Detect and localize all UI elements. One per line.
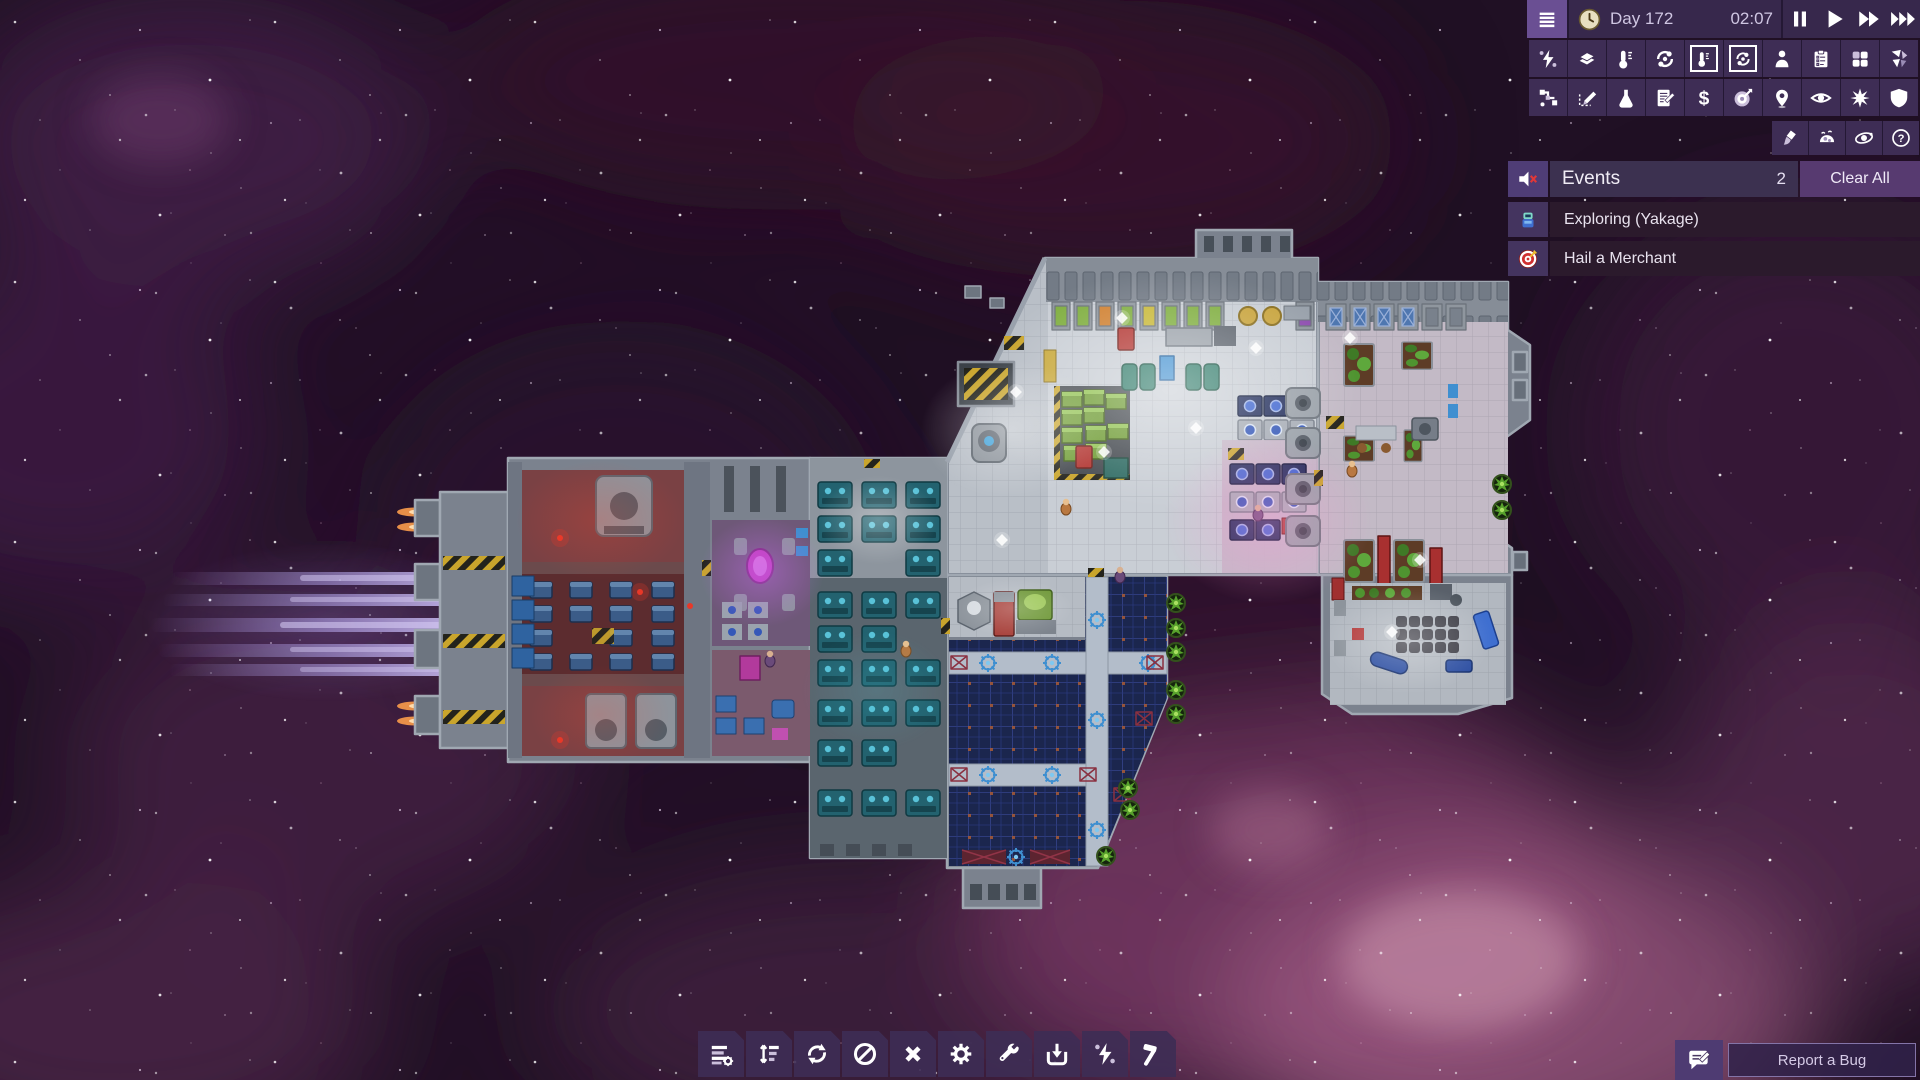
paint-tool-button[interactable] — [1772, 121, 1808, 155]
play-icon — [1821, 6, 1847, 32]
research-button[interactable] — [1607, 79, 1645, 116]
event-row-exploring[interactable]: Exploring (Yakage) — [1508, 202, 1920, 237]
event-label: Hail a Merchant — [1550, 241, 1920, 276]
trade-dollar-icon — [1693, 87, 1715, 109]
play-button[interactable] — [1818, 3, 1850, 35]
chat-pencil-icon — [1686, 1047, 1712, 1073]
gas-exterior-button[interactable] — [1724, 40, 1762, 77]
paint-tool-icon — [1780, 128, 1800, 148]
pipes-network-icon — [1537, 87, 1559, 109]
settings-button[interactable] — [938, 1031, 984, 1077]
overlay-toolbar-row1 — [1529, 40, 1918, 77]
clock-bar: Day 172 02:07 — [1569, 0, 1781, 38]
temperature-exterior-button[interactable] — [1685, 40, 1723, 77]
fastest-forward-icon — [1890, 6, 1916, 32]
menu-icon — [1536, 8, 1558, 30]
power-network-icon — [1092, 1041, 1118, 1067]
clear-all-button[interactable]: Clear All — [1800, 161, 1920, 197]
rotate-icon — [804, 1041, 830, 1067]
floor-tiles-icon — [1576, 48, 1598, 70]
build-list-icon — [708, 1041, 734, 1067]
playback-controls — [1783, 0, 1920, 38]
floor-tiles-button[interactable] — [1568, 40, 1606, 77]
forbid-button[interactable] — [842, 1031, 888, 1077]
time-label: 02:07 — [1730, 9, 1773, 29]
help-icon — [1891, 128, 1911, 148]
event-icon-cell — [1508, 241, 1548, 276]
report-bug-button[interactable]: Report a Bug — [1728, 1043, 1916, 1077]
power-network-button[interactable] — [1082, 1031, 1128, 1077]
pause-icon — [1788, 7, 1812, 31]
visibility-button[interactable] — [1802, 79, 1840, 116]
contracts-document-icon — [1654, 87, 1676, 109]
contracts-button[interactable] — [1646, 79, 1684, 116]
rooms-button[interactable] — [1841, 40, 1879, 77]
event-row-hail-merchant[interactable]: Hail a Merchant — [1508, 241, 1920, 276]
missions-button[interactable] — [1724, 79, 1762, 116]
gas-exterior-icon — [1734, 50, 1752, 68]
pipes-network-button[interactable] — [1529, 79, 1567, 116]
salvage-button[interactable] — [1034, 1031, 1080, 1077]
gas-icon — [1654, 48, 1676, 70]
research-flask-icon — [1615, 87, 1637, 109]
nav-pin-icon — [1771, 87, 1793, 109]
utility-toolbar — [1772, 121, 1919, 155]
planet-dome-button[interactable] — [1809, 121, 1845, 155]
forbid-icon — [852, 1041, 878, 1067]
power-overlay-button[interactable] — [1529, 40, 1567, 77]
missions-target-icon — [1732, 87, 1754, 109]
events-panel: Events 2 Clear All Exploring (Yakage) Ha… — [1508, 161, 1920, 280]
rotate-button[interactable] — [794, 1031, 840, 1077]
rooms-icon — [1849, 48, 1871, 70]
mission-target-icon — [1517, 248, 1539, 270]
build-hammer-button[interactable] — [1130, 1031, 1176, 1077]
draw-plan-button[interactable] — [1568, 79, 1606, 116]
shield-button[interactable] — [1880, 79, 1918, 116]
planet-dome-icon — [1817, 128, 1837, 148]
salvage-download-icon — [1044, 1041, 1070, 1067]
menu-button[interactable] — [1527, 0, 1567, 38]
fast-forward-button[interactable] — [1853, 3, 1885, 35]
bug-chat-button[interactable] — [1675, 1040, 1723, 1080]
repair-button[interactable] — [986, 1031, 1032, 1077]
day-label: Day 172 — [1610, 9, 1673, 29]
pause-button[interactable] — [1784, 3, 1816, 35]
gas-button[interactable] — [1646, 40, 1684, 77]
exploring-pod-icon — [1517, 209, 1539, 231]
priorities-button[interactable] — [746, 1031, 792, 1077]
time-bar: Day 172 02:07 — [1527, 0, 1920, 38]
build-list-button[interactable] — [698, 1031, 744, 1077]
bug-report: Report a Bug — [1675, 1040, 1916, 1080]
temperature-exterior-icon — [1695, 50, 1713, 68]
crew-button[interactable] — [1763, 40, 1801, 77]
combat-burst-icon — [1849, 87, 1871, 109]
tasks-clipboard-button[interactable] — [1802, 40, 1840, 77]
event-label: Exploring (Yakage) — [1550, 202, 1920, 237]
hull-shards-icon — [1888, 48, 1910, 70]
tasks-clipboard-icon — [1810, 48, 1832, 70]
help-button[interactable] — [1883, 121, 1919, 155]
fast-forward-icon — [1856, 6, 1882, 32]
speaker-muted-icon — [1517, 168, 1539, 190]
trade-button[interactable] — [1685, 79, 1723, 116]
deconstruct-button[interactable] — [890, 1031, 936, 1077]
settings-gear-icon — [948, 1041, 974, 1067]
shield-icon — [1888, 87, 1910, 109]
combat-button[interactable] — [1841, 79, 1879, 116]
hull-shards-button[interactable] — [1880, 40, 1918, 77]
mute-events-button[interactable] — [1508, 161, 1548, 197]
repair-wrench-icon — [996, 1041, 1022, 1067]
events-title: Events — [1562, 168, 1620, 190]
draw-plan-icon — [1576, 87, 1598, 109]
build-toolbar — [698, 1031, 1176, 1077]
temperature-icon — [1615, 48, 1637, 70]
temperature-button[interactable] — [1607, 40, 1645, 77]
power-icon — [1537, 48, 1559, 70]
clock-icon — [1577, 7, 1602, 32]
overlay-toolbar-row2 — [1529, 79, 1918, 116]
visibility-eye-icon — [1810, 87, 1832, 109]
fastest-forward-button[interactable] — [1887, 3, 1919, 35]
build-hammer-icon — [1140, 1041, 1166, 1067]
orbit-map-icon — [1854, 128, 1874, 148]
events-header: Events 2 — [1550, 161, 1798, 197]
crew-icon — [1771, 48, 1793, 70]
event-icon-cell — [1508, 202, 1548, 237]
nav-pin-button[interactable] — [1763, 79, 1801, 116]
priorities-sort-icon — [756, 1041, 782, 1067]
orbit-map-button[interactable] — [1846, 121, 1882, 155]
events-count: 2 — [1777, 169, 1786, 189]
deconstruct-cross-icon — [900, 1041, 926, 1067]
